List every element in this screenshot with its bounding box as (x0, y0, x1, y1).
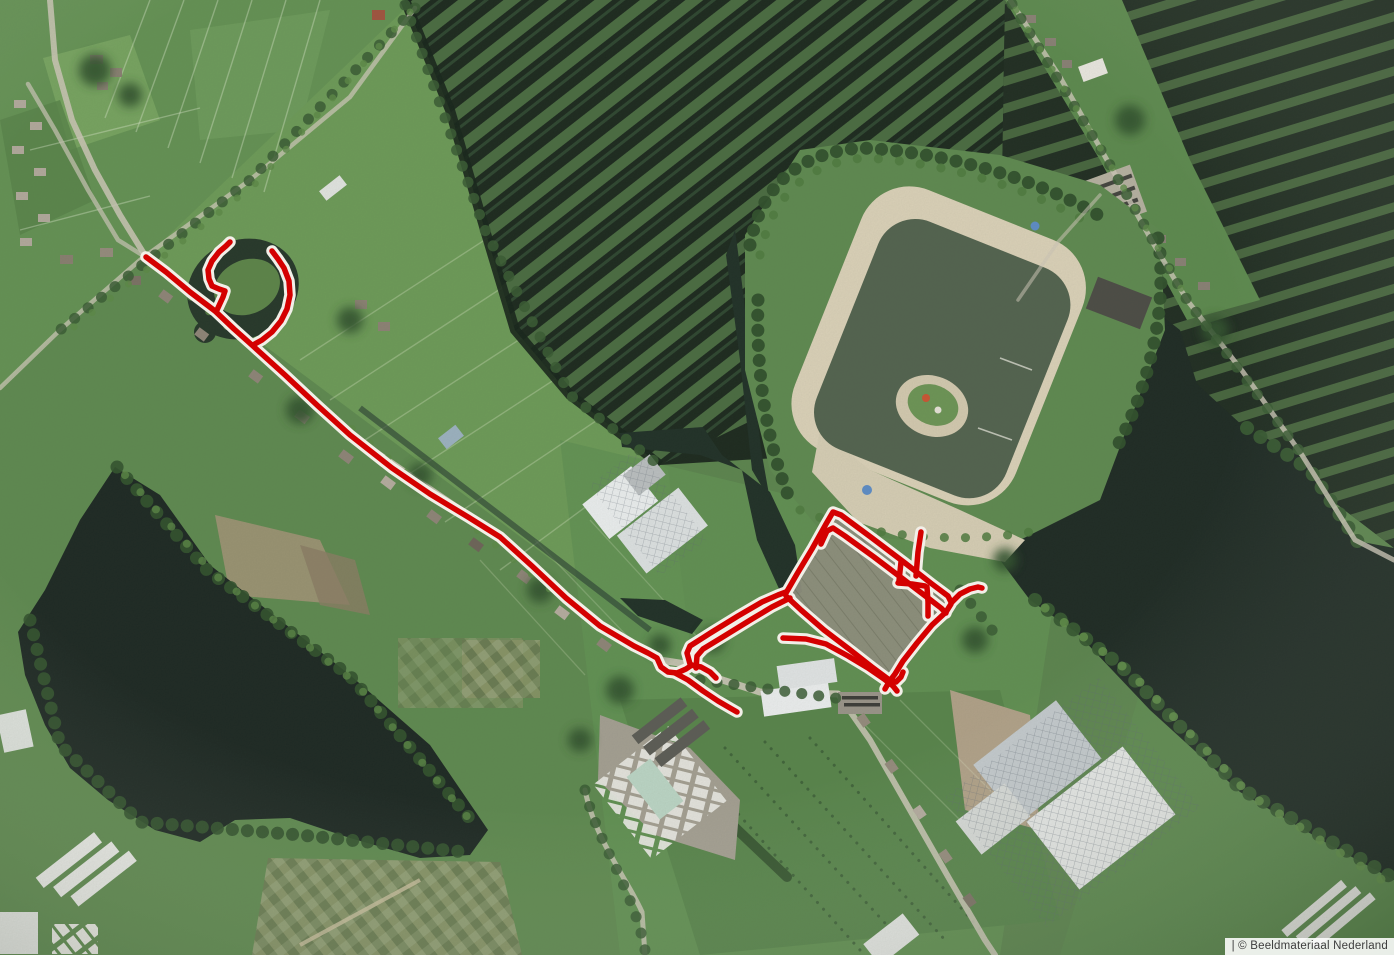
aerial-map-canvas[interactable]: | © Beeldmateriaal Nederland (0, 0, 1394, 955)
route-segment-cross-street-east (927, 587, 928, 616)
attribution-text: | © Beeldmateriaal Nederland (1232, 940, 1388, 952)
aerial-imagery (0, 0, 1394, 955)
route-segment-cross-street-west (899, 562, 901, 581)
grain-overlay (0, 0, 1394, 955)
attribution: | © Beeldmateriaal Nederland (1225, 938, 1394, 955)
route-segment-cross-street-link (898, 583, 925, 586)
